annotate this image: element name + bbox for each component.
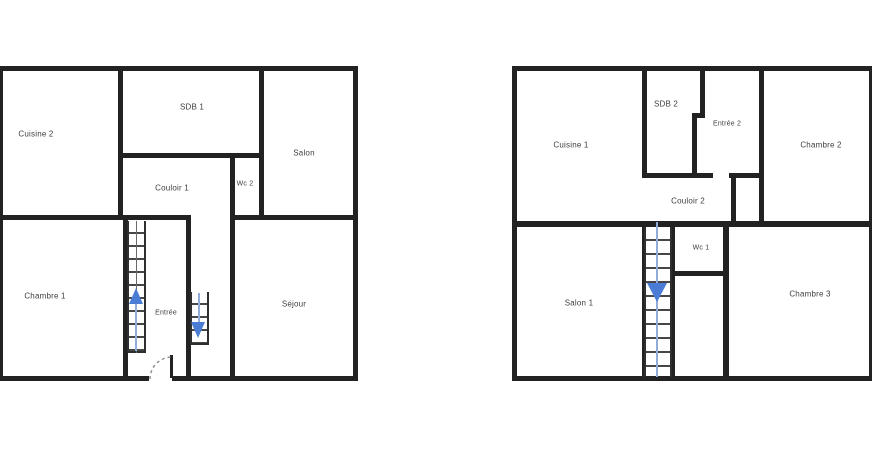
room-label-sdb-1: SDB 1 — [180, 103, 204, 112]
wall — [759, 66, 764, 178]
room-label-chambre-3: Chambre 3 — [789, 290, 830, 299]
wall — [259, 66, 264, 220]
stairs-down-arrow-icon — [647, 283, 667, 302]
room-label-salon-1: Salon 1 — [565, 299, 594, 308]
room-label-chambre-2: Chambre 2 — [800, 141, 841, 150]
wall — [731, 173, 736, 226]
wall — [512, 376, 872, 381]
wall — [671, 271, 729, 276]
wall — [642, 173, 713, 178]
wall — [118, 66, 123, 220]
room-label-salon: Salon — [293, 149, 314, 158]
wall — [700, 66, 705, 118]
wall — [642, 66, 647, 178]
wall — [692, 113, 697, 178]
wall — [230, 153, 235, 220]
room-label-chambre-1: Chambre 1 — [24, 292, 65, 301]
wall — [723, 221, 729, 381]
wall — [230, 215, 358, 220]
wall — [512, 221, 872, 227]
room-label-couloir-1: Couloir 1 — [155, 184, 189, 193]
staircase-direction-line — [198, 293, 200, 323]
room-label-sdb-2: SDB 2 — [654, 100, 678, 109]
room-label-cuisine-1: Cuisine 1 — [553, 141, 588, 150]
wall — [0, 66, 3, 381]
wall — [353, 66, 358, 381]
staircase-direction-line — [135, 301, 137, 351]
wall — [118, 153, 264, 158]
room-label-cuisine-2: Cuisine 2 — [18, 130, 53, 139]
wall — [230, 220, 235, 381]
room-label-wc-2: Wc 2 — [237, 181, 254, 188]
door-swing-arc-icon — [147, 354, 173, 380]
wall — [512, 66, 872, 71]
wall — [0, 215, 191, 220]
stairs-down-arrow-icon — [191, 322, 205, 338]
wall — [759, 173, 764, 226]
stairs-up-arrow-icon — [129, 288, 143, 304]
room-label-wc-1: Wc 1 — [693, 245, 710, 252]
room-label-sejour: Séjour — [282, 300, 306, 309]
staircase-down — [644, 227, 672, 377]
wall — [0, 66, 358, 71]
room-label-entree-2: Entrée 2 — [713, 121, 741, 128]
room-label-couloir-2: Couloir 2 — [671, 197, 705, 206]
wall — [172, 376, 358, 381]
room-label-entree: Entrée — [155, 310, 177, 317]
floor-plans-canvas: Cuisine 2 SDB 1 Salon Couloir 1 Wc 2 Cha… — [0, 0, 872, 460]
